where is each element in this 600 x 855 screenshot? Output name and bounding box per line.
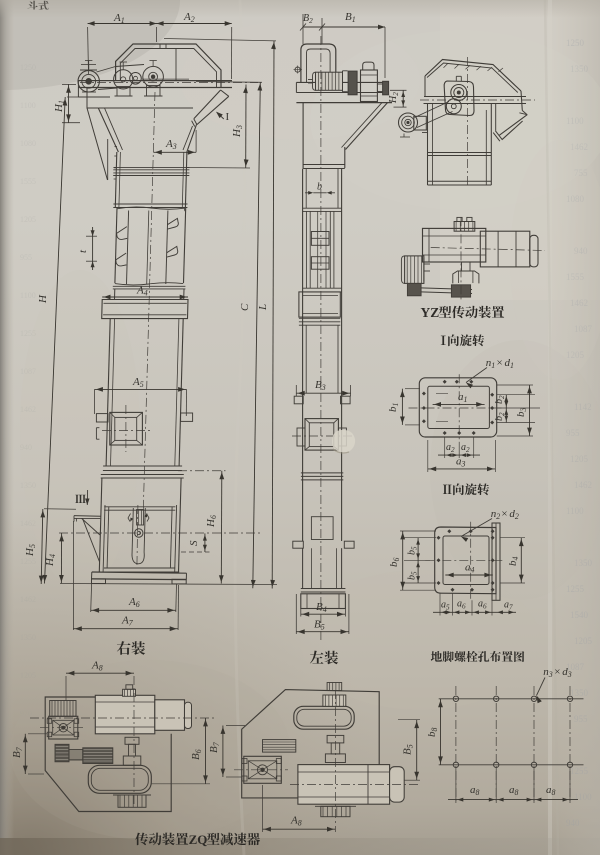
svg-text:1205: 1205 <box>20 671 36 680</box>
svg-text:I: I <box>226 111 230 123</box>
svg-text:1205: 1205 <box>20 215 36 224</box>
svg-text:1350: 1350 <box>20 633 36 642</box>
svg-text:C: C <box>239 303 251 311</box>
svg-text:ZQ: ZQ <box>189 832 208 847</box>
svg-text:1100: 1100 <box>574 792 592 802</box>
svg-text:1080: 1080 <box>20 139 36 148</box>
svg-text:×: × <box>554 666 560 678</box>
svg-text:YZ: YZ <box>421 305 440 320</box>
svg-text:1255: 1255 <box>566 584 585 594</box>
svg-text:1250: 1250 <box>20 63 36 72</box>
svg-text:1205: 1205 <box>574 636 593 646</box>
svg-text:H: H <box>37 294 49 304</box>
svg-text:940: 940 <box>566 818 580 828</box>
svg-text:1250: 1250 <box>566 38 585 48</box>
svg-text:955: 955 <box>574 714 588 724</box>
svg-text:×: × <box>497 357 503 369</box>
svg-text:1462: 1462 <box>20 595 36 604</box>
svg-text:1255: 1255 <box>20 557 36 566</box>
svg-text:955: 955 <box>20 253 32 262</box>
svg-text:S: S <box>188 540 200 546</box>
svg-text:L: L <box>257 304 269 311</box>
svg-text:1100: 1100 <box>20 291 36 300</box>
svg-text:1540: 1540 <box>570 610 589 620</box>
svg-text:1100: 1100 <box>20 101 36 110</box>
svg-text:1350: 1350 <box>570 688 589 698</box>
svg-text:1255: 1255 <box>570 766 589 776</box>
svg-text:1555: 1555 <box>20 177 36 186</box>
svg-text:×: × <box>501 508 507 520</box>
